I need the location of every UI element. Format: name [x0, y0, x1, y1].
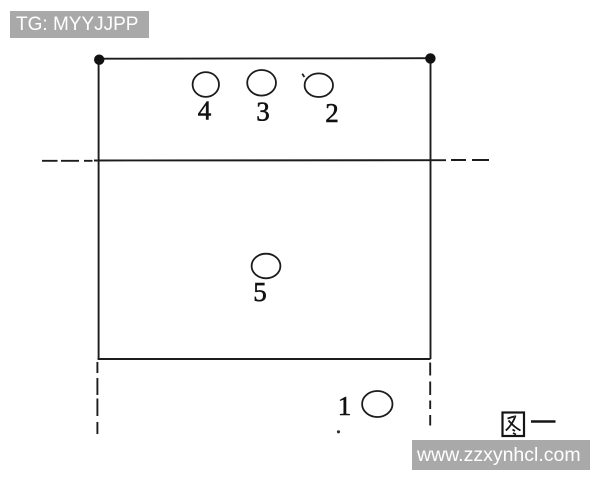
- svg-text:4: 4: [198, 96, 212, 126]
- svg-text:1: 1: [338, 391, 352, 421]
- svg-text:3: 3: [256, 97, 270, 127]
- svg-text:5: 5: [253, 277, 267, 307]
- svg-text:2: 2: [325, 98, 339, 128]
